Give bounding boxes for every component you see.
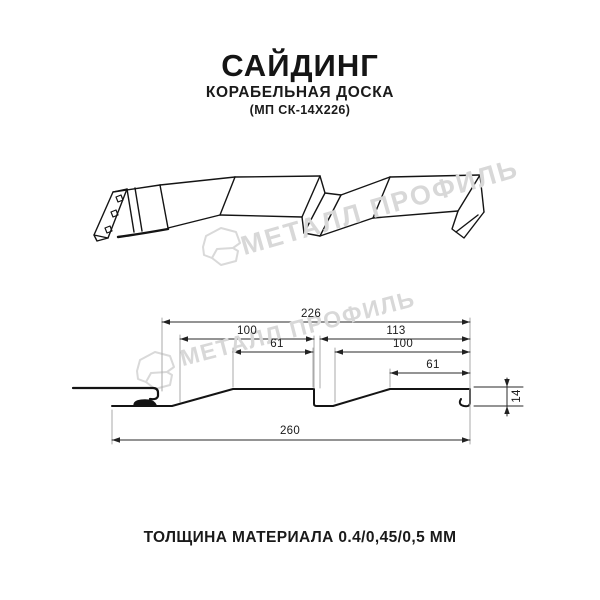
dim-overall-width: 226 [289, 308, 333, 320]
product-drawing-page: МЕТАЛЛ ПРОФИЛЬ МЕТАЛЛ ПРОФИЛЬ САЙДИНГ КО… [0, 0, 600, 600]
metal-profil-logo-icon [137, 352, 174, 389]
siding-3d-view [94, 175, 484, 241]
material-thickness-note: ТОЛЩИНА МАТЕРИАЛА 0.4/0,45/0,5 ММ [0, 529, 600, 547]
dim-right-span: 113 [374, 325, 418, 337]
dim-right-flat: 61 [411, 359, 455, 371]
dim-total-width: 260 [268, 425, 312, 437]
cross-section-profile [73, 388, 470, 406]
dimension-lines [112, 322, 523, 440]
product-subtitle: КОРАБЕЛЬНАЯ ДОСКА [0, 84, 600, 102]
product-code: (МП СК-14Х226) [0, 103, 600, 117]
dim-profile-height: 14 [511, 381, 529, 411]
nail-hole-icon [105, 195, 123, 233]
dim-left-span: 100 [225, 325, 269, 337]
page-title: САЙДИНГ [0, 48, 600, 84]
dim-right-inner-span: 100 [381, 338, 425, 350]
dim-left-flat: 61 [255, 338, 299, 350]
metal-profil-logo-icon [203, 228, 240, 265]
